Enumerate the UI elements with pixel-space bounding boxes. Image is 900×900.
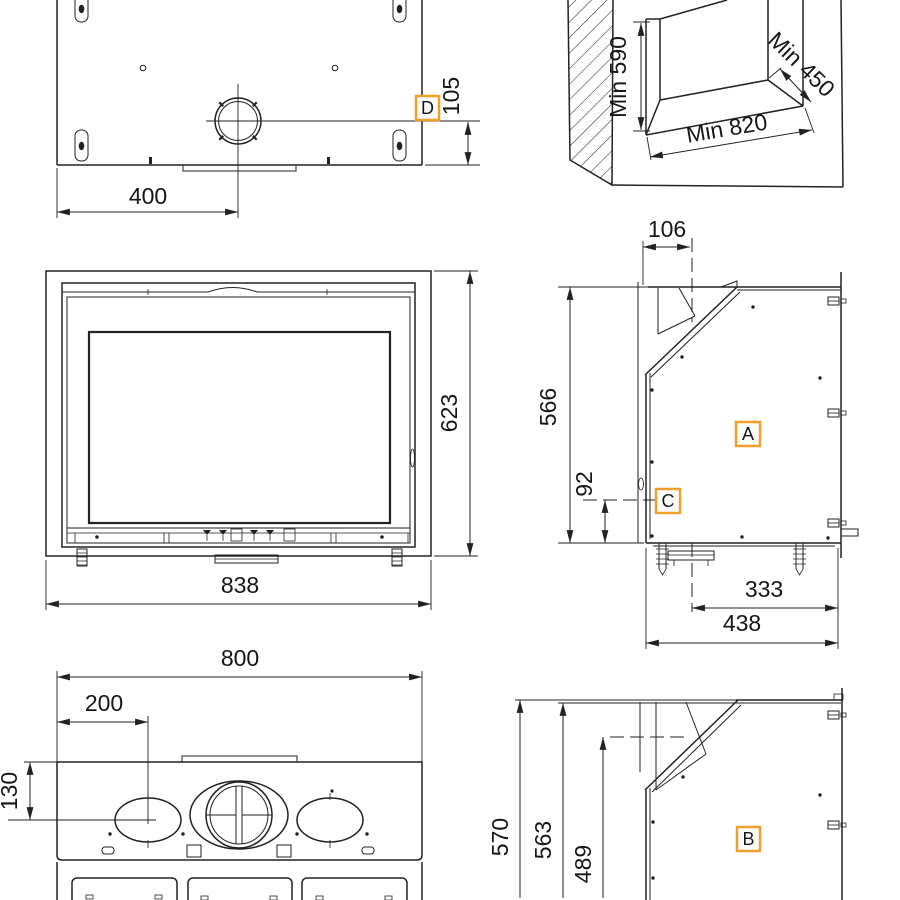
callout-a-label: A	[742, 424, 754, 444]
callout-c: C	[656, 489, 680, 513]
door-latch	[411, 449, 415, 467]
flue-rosette	[190, 781, 288, 849]
callout-d-label: D	[421, 98, 434, 118]
dim-min590-label: Min 590	[605, 36, 631, 118]
dim-563-label: 563	[530, 821, 556, 859]
leveling-foot	[392, 549, 402, 566]
view-flue-plan: 400 105 D	[57, 0, 480, 218]
dim-623-label: 623	[436, 394, 462, 432]
dim-min820-label: Min 820	[684, 109, 769, 148]
callout-c-label: C	[662, 491, 675, 511]
anchor-leg	[793, 543, 806, 575]
dim-106-label: 106	[648, 216, 686, 242]
screw	[397, 5, 403, 13]
view-top-plate: 800 200 130	[0, 645, 422, 900]
callout-b: B	[737, 827, 760, 851]
flue-collar	[206, 84, 278, 176]
dim-200-label: 200	[85, 690, 123, 716]
screw	[79, 142, 85, 150]
screw	[79, 5, 85, 13]
view-niche: Min 590 Min 450 Min 820	[568, 0, 843, 187]
dim-400-label: 400	[129, 183, 167, 209]
dim-570-label: 570	[487, 818, 513, 856]
dim-489-label: 489	[570, 845, 596, 883]
view-front: 623 838	[46, 271, 478, 610]
dim-800-label: 800	[221, 645, 259, 671]
callout-d: D	[416, 96, 439, 120]
dim-105-label: 105	[438, 77, 464, 115]
technical-drawing: 400 105 D Min 590 Min 450 Min 820	[0, 0, 900, 900]
dim-838-label: 838	[221, 572, 259, 598]
leveling-foot	[77, 549, 87, 566]
callout-b-label: B	[742, 829, 754, 849]
flue-hood	[658, 288, 695, 334]
dim-min450-label: Min 450	[763, 26, 840, 102]
dim-566-label: 566	[535, 388, 561, 426]
screw	[397, 142, 403, 150]
callout-a: A	[736, 422, 760, 446]
anchor-leg	[656, 543, 669, 575]
page: 400 105 D Min 590 Min 450 Min 820	[0, 0, 900, 900]
convection-oval	[297, 798, 363, 842]
base-tray	[668, 551, 714, 566]
dim-130-label: 130	[0, 772, 22, 810]
mounting-clips	[828, 711, 846, 829]
door-glass	[89, 332, 390, 523]
dim-333-label: 333	[745, 576, 783, 602]
rear-pin	[841, 529, 858, 536]
dim-438-label: 438	[723, 610, 761, 636]
view-side-b: 570 563 489 B	[487, 688, 846, 900]
mounting-clips	[828, 297, 846, 527]
dim-92-label: 92	[571, 471, 597, 497]
vent-grilles	[72, 878, 407, 900]
view-side-a: 106 566 92 333 438 A C	[535, 216, 858, 649]
air-controls	[95, 529, 384, 541]
